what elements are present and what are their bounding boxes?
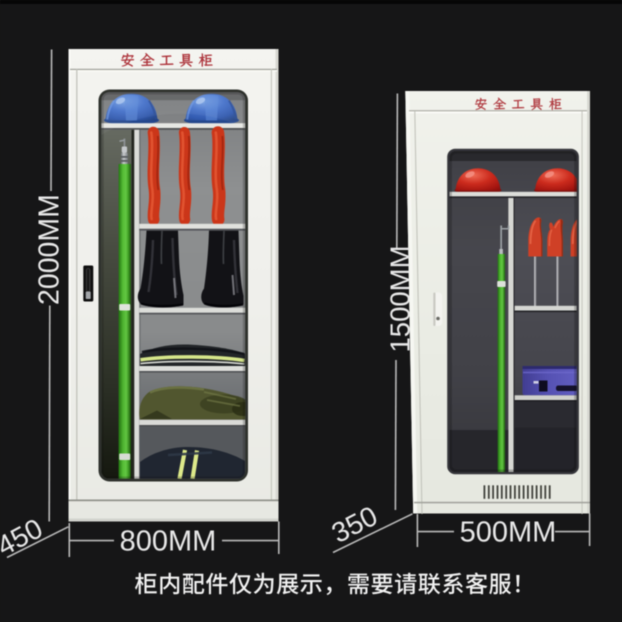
svg-text:800MM: 800MM <box>120 526 217 558</box>
svg-text:500MM: 500MM <box>460 517 557 549</box>
svg-text:2000MM: 2000MM <box>34 194 66 305</box>
svg-text:1500MM: 1500MM <box>385 246 416 353</box>
